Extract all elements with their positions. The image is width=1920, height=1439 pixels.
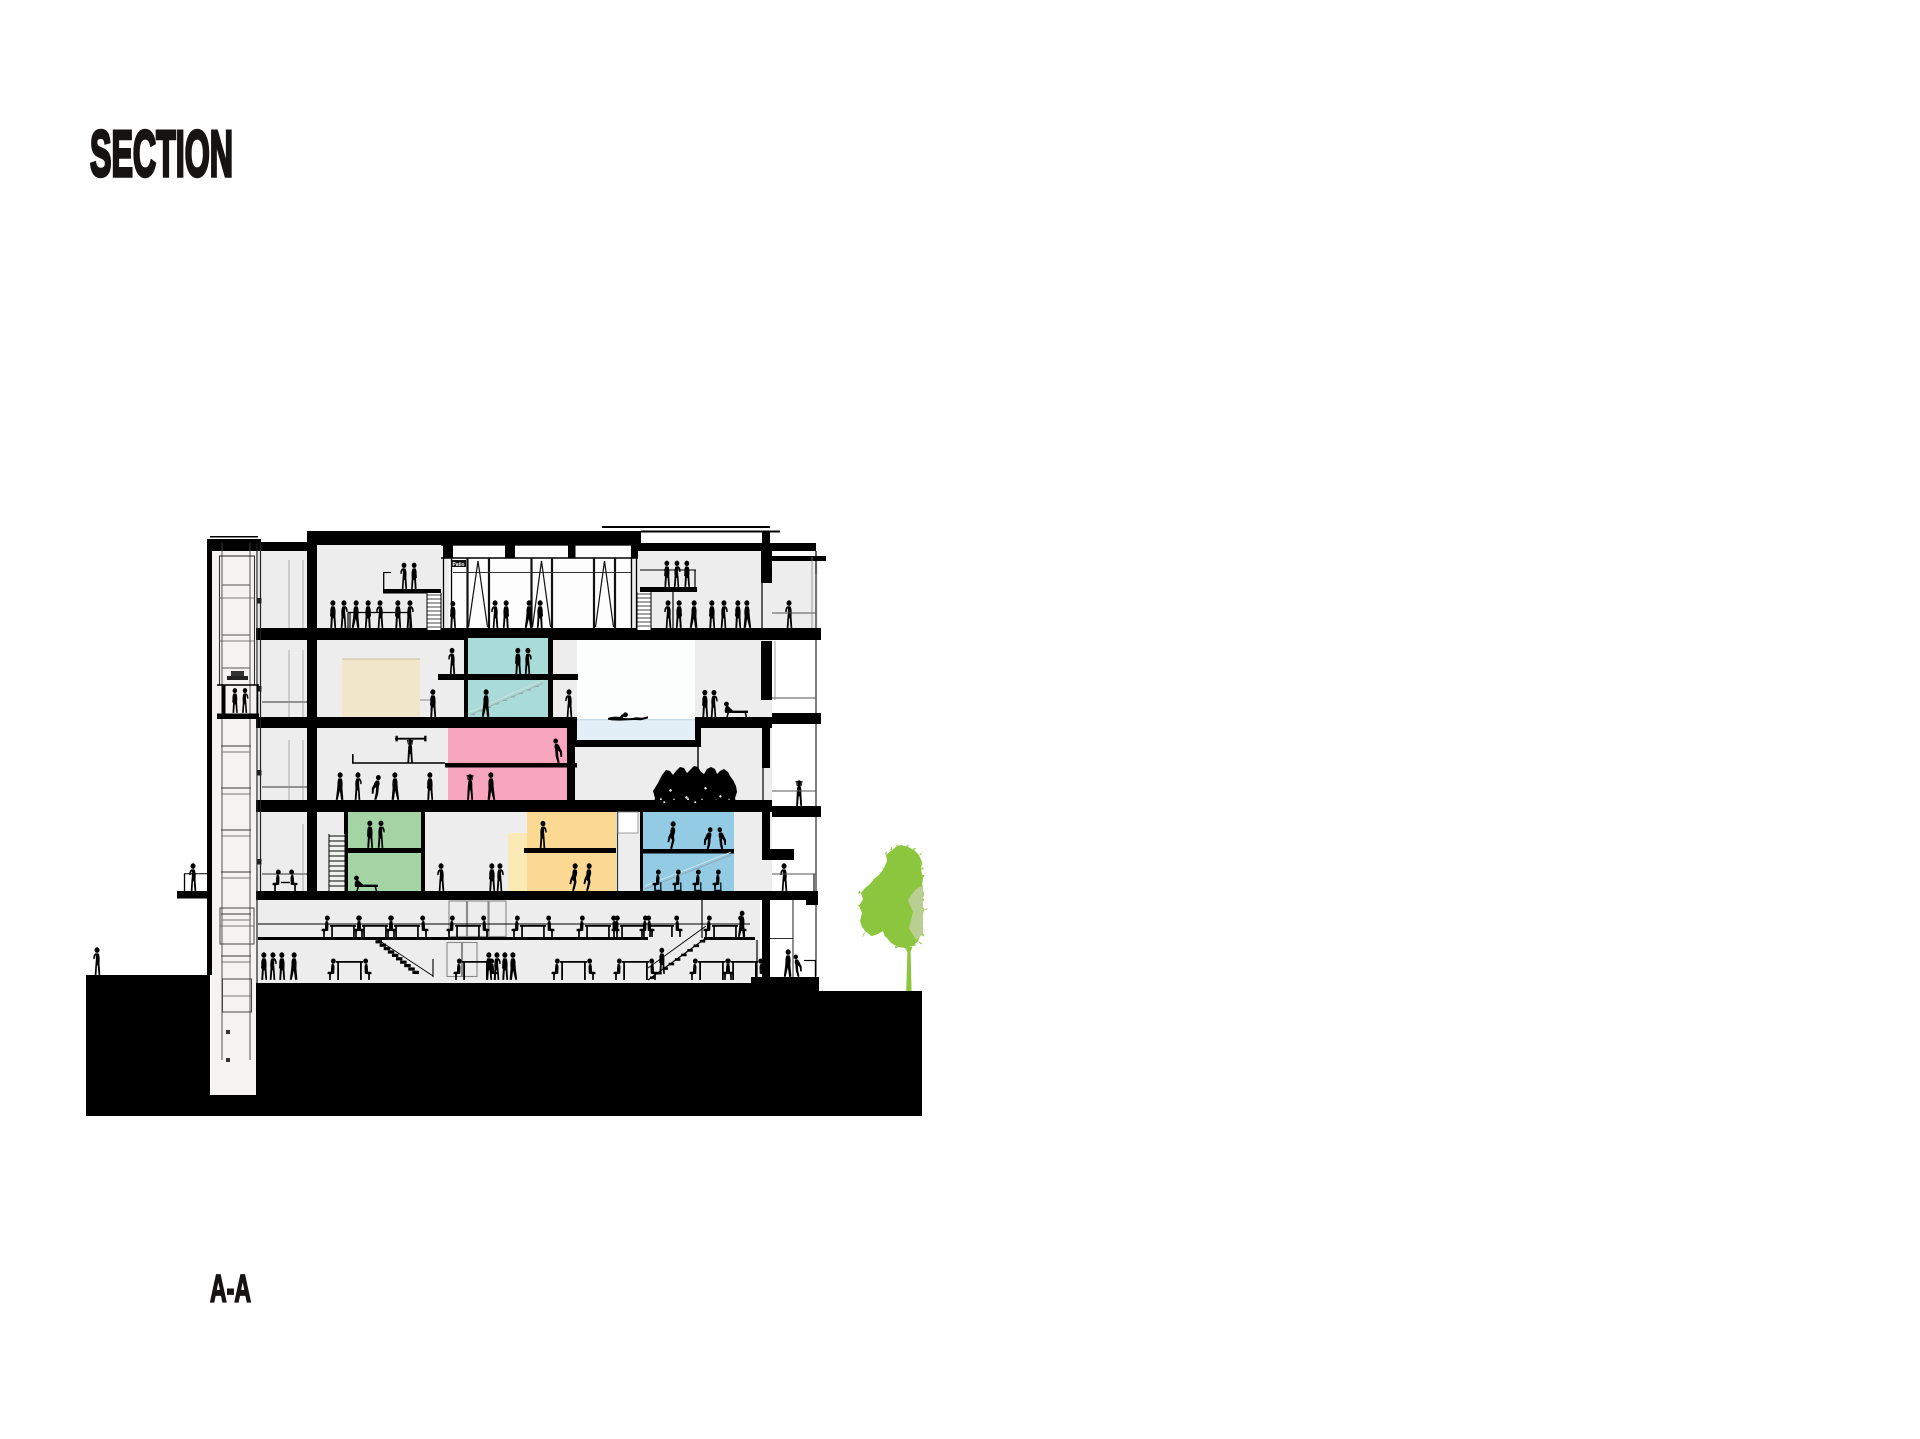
svg-text:SECTION: SECTION: [90, 117, 233, 190]
svg-text:Patio: Patio: [453, 562, 466, 568]
svg-text:A-A: A-A: [210, 1268, 251, 1311]
